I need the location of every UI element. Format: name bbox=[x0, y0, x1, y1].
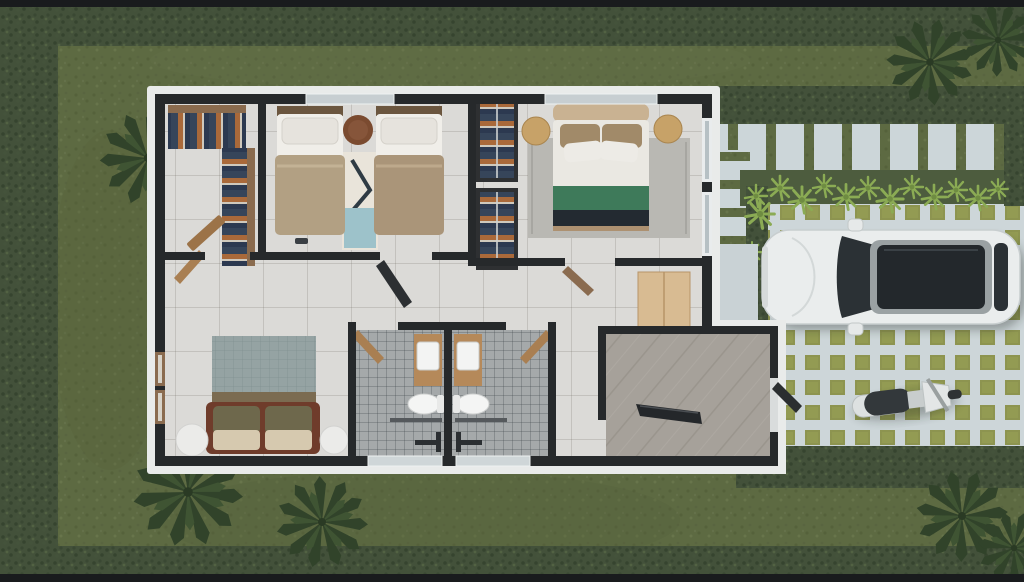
wall-main-bottom-a bbox=[468, 258, 565, 266]
round-table-left bbox=[176, 424, 208, 456]
sofa-cushion-cream-1 bbox=[213, 430, 260, 450]
hedge-top bbox=[0, 6, 1024, 46]
hedge-left bbox=[0, 6, 58, 574]
floorplan-render bbox=[0, 0, 1024, 582]
toilet-left-tank bbox=[437, 395, 444, 413]
car-roof-glass bbox=[877, 245, 985, 309]
main-bed-foot-bench bbox=[553, 226, 649, 231]
wall-entry-top bbox=[598, 326, 778, 334]
house bbox=[147, 86, 802, 474]
window-left-1-glass bbox=[158, 355, 162, 383]
car bbox=[762, 219, 1024, 335]
sofa-pillow-olive-1 bbox=[213, 406, 260, 434]
towel-shelf-right bbox=[455, 418, 507, 422]
main-bed-headboard bbox=[553, 104, 649, 122]
main-bed-pillow-white-2 bbox=[599, 140, 639, 163]
car-mirror-top bbox=[848, 219, 863, 231]
window-bottom-bath-left bbox=[368, 456, 442, 466]
main-side-table-right bbox=[654, 115, 682, 143]
living-rug-texture bbox=[212, 336, 316, 394]
window-top-twin bbox=[306, 94, 394, 104]
main-bed-pillow-white-1 bbox=[563, 140, 603, 163]
window-top-main bbox=[545, 94, 657, 104]
slippers bbox=[295, 238, 308, 244]
closet-rail-side bbox=[247, 148, 255, 266]
hedge-inner-corner bbox=[1004, 118, 1024, 206]
toilet-left bbox=[408, 394, 440, 414]
window-pouf-top bbox=[348, 120, 368, 140]
window-right-1-glass bbox=[705, 121, 709, 179]
wall-closet-divider bbox=[258, 104, 266, 252]
main-bed-green-throw bbox=[553, 186, 649, 210]
twin-bed1-pillow bbox=[282, 118, 338, 144]
closet-clothes-top bbox=[168, 113, 246, 149]
main-bed-foot-dark bbox=[553, 210, 649, 226]
sink-right bbox=[457, 342, 479, 370]
wall-twin-bottom-a bbox=[266, 252, 380, 260]
car-rear-window bbox=[994, 243, 1008, 311]
hedge-bottom bbox=[0, 546, 1024, 576]
wall-bath-left bbox=[348, 322, 356, 456]
letterbox-top bbox=[0, 0, 1024, 7]
wall-bath-right bbox=[548, 322, 556, 456]
twin-bedroom bbox=[275, 106, 444, 250]
window-left-2-glass bbox=[158, 393, 162, 421]
scene-root bbox=[0, 0, 1024, 582]
main-side-table-left bbox=[522, 117, 550, 145]
window-right-2-glass bbox=[705, 195, 709, 253]
shower-pipe-left bbox=[436, 432, 441, 452]
twin-bed2-pillow bbox=[381, 118, 437, 144]
toilet-right bbox=[457, 394, 489, 414]
shower-pipe-right bbox=[456, 432, 461, 452]
window-bottom-bath-right bbox=[456, 456, 530, 466]
toilet-right-tank bbox=[453, 395, 460, 413]
closet-clothes-side bbox=[222, 148, 247, 266]
twin-rug-blue bbox=[344, 208, 376, 248]
car-mirror-bottom bbox=[848, 323, 863, 335]
hedge-inner-top bbox=[698, 86, 1024, 124]
closet-rail-top bbox=[168, 105, 246, 113]
letterbox-bottom bbox=[0, 574, 1024, 582]
car-grille bbox=[762, 246, 768, 308]
wall-bedroom-divider bbox=[468, 104, 476, 266]
wall-closet-bottom-a bbox=[155, 252, 205, 260]
wall-twin-bottom-b bbox=[432, 252, 468, 260]
wall-bath-divider bbox=[444, 322, 452, 456]
floor-entry bbox=[606, 334, 770, 456]
round-table-right bbox=[320, 426, 348, 454]
sofa-pillow-olive-2 bbox=[265, 406, 312, 434]
wall-entry-left bbox=[598, 334, 606, 420]
sink-left bbox=[417, 342, 439, 370]
sofa-cushion-cream-2 bbox=[265, 430, 312, 450]
wall-closet-bottom-b bbox=[250, 252, 266, 260]
towel-shelf-left bbox=[390, 418, 442, 422]
wall-main-bottom-b bbox=[615, 258, 712, 266]
